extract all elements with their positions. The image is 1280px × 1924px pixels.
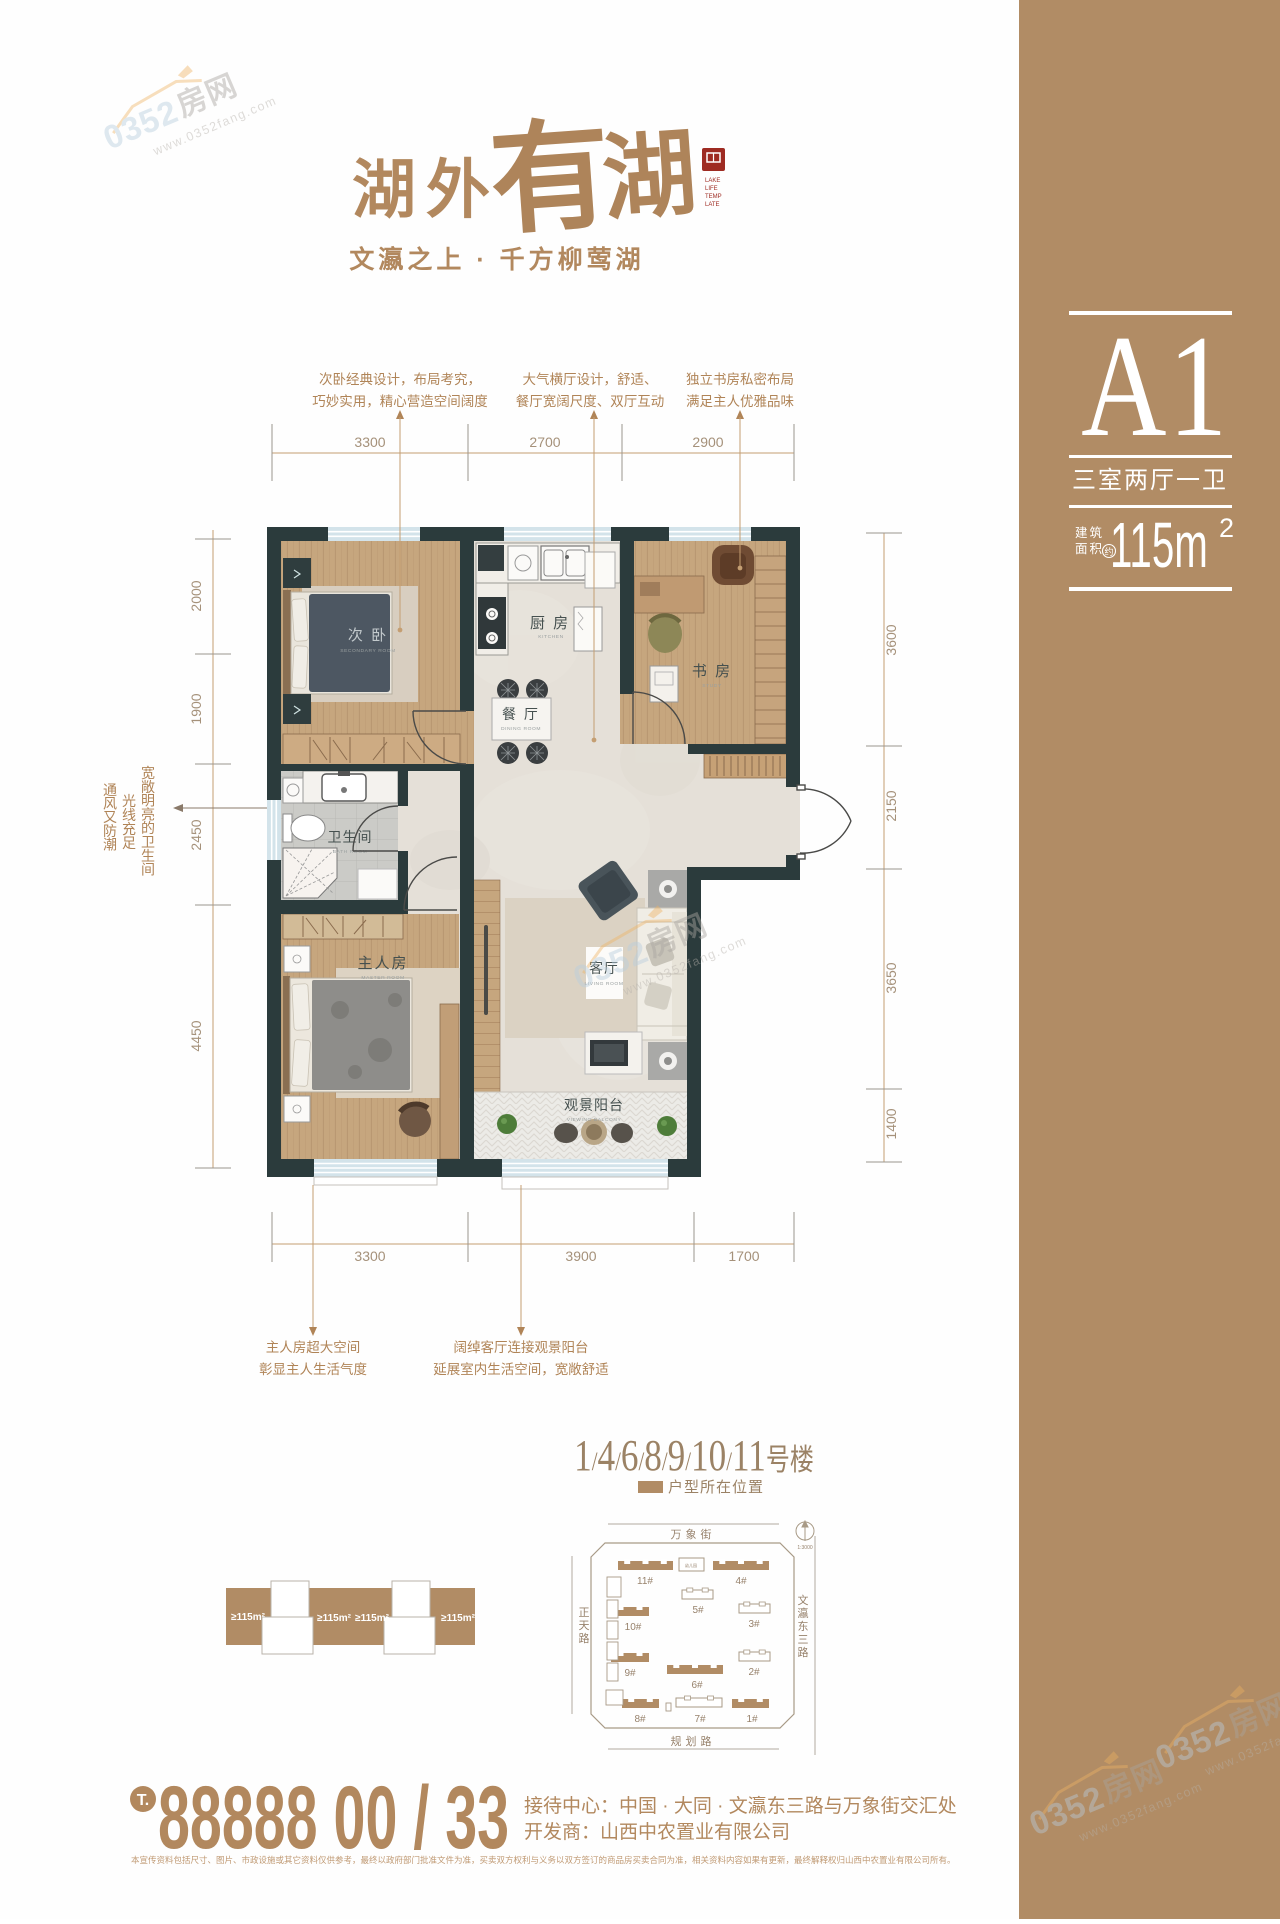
svg-text:规划路: 规划路 bbox=[671, 1734, 716, 1748]
svg-text:餐 厅: 餐 厅 bbox=[502, 706, 540, 722]
svg-text:厨 房: 厨 房 bbox=[530, 615, 570, 632]
svg-text:宽敞明亮的卫生间: 宽敞明亮的卫生间 bbox=[141, 765, 155, 878]
svg-text:2150: 2150 bbox=[883, 790, 899, 821]
svg-text:3650: 3650 bbox=[883, 962, 899, 993]
svg-text:BATH ROOM: BATH ROOM bbox=[333, 849, 367, 855]
svg-text:STUDY: STUDY bbox=[702, 683, 722, 689]
svg-text:4450: 4450 bbox=[188, 1020, 204, 1051]
svg-text:彰显主人生活气度: 彰显主人生活气度 bbox=[259, 1361, 367, 1377]
svg-text:1700: 1700 bbox=[728, 1248, 759, 1264]
svg-text:建筑: 建筑 bbox=[1075, 525, 1104, 540]
svg-text:延展室内生活空间，宽敞舒适: 延展室内生活空间，宽敞舒适 bbox=[433, 1361, 609, 1377]
svg-text:文瀛之上 · 千方柳莺湖: 文瀛之上 · 千方柳莺湖 bbox=[349, 245, 644, 274]
svg-text:3600: 3600 bbox=[883, 624, 899, 655]
svg-text:LIFE: LIFE bbox=[705, 186, 718, 192]
svg-text:LATE: LATE bbox=[705, 202, 720, 208]
svg-text:2#: 2# bbox=[748, 1667, 760, 1678]
svg-text:书 房: 书 房 bbox=[692, 663, 732, 680]
svg-text:1900: 1900 bbox=[188, 693, 204, 724]
svg-text:有: 有 bbox=[486, 108, 615, 249]
svg-text:接待中心：中国 · 大同 · 文瀛东三路与万象街交汇处: 接待中心：中国 · 大同 · 文瀛东三路与万象街交汇处 bbox=[524, 1794, 957, 1817]
svg-text:湖: 湖 bbox=[599, 122, 700, 232]
svg-text:LAKE: LAKE bbox=[705, 178, 720, 184]
svg-text:餐厅宽阔尺度、双厅互动: 餐厅宽阔尺度、双厅互动 bbox=[516, 393, 665, 409]
svg-text:7#: 7# bbox=[694, 1714, 706, 1725]
svg-text:≥115m²: ≥115m² bbox=[355, 1613, 390, 1624]
svg-text:三室两厅一卫: 三室两厅一卫 bbox=[1072, 467, 1228, 494]
svg-text:湖外: 湖外 bbox=[352, 155, 500, 226]
svg-text:4#: 4# bbox=[735, 1576, 747, 1587]
svg-text:2900: 2900 bbox=[692, 434, 723, 450]
svg-text:2: 2 bbox=[1219, 513, 1234, 543]
svg-text:阔绰客厅连接观景阳台: 阔绰客厅连接观景阳台 bbox=[454, 1339, 589, 1355]
svg-text:VIEWING BALCONY: VIEWING BALCONY bbox=[567, 1117, 622, 1123]
svg-text:DINING ROOM: DINING ROOM bbox=[501, 726, 541, 732]
svg-text:≥115m²: ≥115m² bbox=[441, 1613, 476, 1624]
svg-text:主人房: 主人房 bbox=[357, 955, 408, 972]
svg-text:幼儿园: 幼儿园 bbox=[685, 1562, 697, 1568]
svg-text:光线充足: 光线充足 bbox=[122, 793, 136, 851]
svg-text:≥115m²: ≥115m² bbox=[231, 1612, 266, 1623]
svg-text:万象街: 万象街 bbox=[671, 1527, 716, 1541]
svg-text:1400: 1400 bbox=[883, 1108, 899, 1139]
svg-text:A1: A1 bbox=[1081, 305, 1229, 467]
svg-text:2000: 2000 bbox=[188, 580, 204, 611]
svg-text:SECONDARY ROOM: SECONDARY ROOM bbox=[340, 648, 396, 654]
svg-text:3300: 3300 bbox=[354, 434, 385, 450]
svg-text:大气横厅设计，舒适、: 大气横厅设计，舒适、 bbox=[523, 372, 658, 387]
svg-text:MASTER ROOM: MASTER ROOM bbox=[361, 975, 404, 981]
svg-text:次卧经典设计，布局考究，: 次卧经典设计，布局考究， bbox=[319, 372, 481, 387]
svg-text:开发商：山西中农置业有限公司: 开发商：山西中农置业有限公司 bbox=[524, 1821, 790, 1843]
svg-text:满足主人优雅品味: 满足主人优雅品味 bbox=[686, 394, 794, 409]
svg-text:本宣传资料包括尺寸、图片、市政设施或其它资料仅供参考，最终以: 本宣传资料包括尺寸、图片、市政设施或其它资料仅供参考，最终以政府部门批准文件为准… bbox=[131, 1855, 956, 1865]
svg-text:通风又防潮: 通风又防潮 bbox=[103, 782, 117, 852]
svg-text:卫生间: 卫生间 bbox=[328, 829, 373, 845]
svg-text:3900: 3900 bbox=[565, 1248, 596, 1264]
svg-text:1:3000: 1:3000 bbox=[797, 1545, 813, 1551]
svg-text:11#: 11# bbox=[637, 1576, 653, 1587]
svg-text:9#: 9# bbox=[624, 1668, 636, 1679]
svg-text:6#: 6# bbox=[691, 1680, 703, 1691]
svg-text:T.: T. bbox=[137, 1792, 149, 1809]
svg-text:3#: 3# bbox=[748, 1619, 760, 1630]
svg-text:KITCHEN: KITCHEN bbox=[538, 634, 564, 640]
svg-text:88888 00 / 33: 88888 00 / 33 bbox=[158, 1767, 509, 1867]
svg-text:1#: 1# bbox=[746, 1714, 758, 1725]
svg-text:10#: 10# bbox=[625, 1622, 642, 1633]
svg-text:主人房超大空间: 主人房超大空间 bbox=[266, 1340, 361, 1355]
svg-text:115m: 115m bbox=[1110, 511, 1208, 582]
svg-text:8#: 8# bbox=[634, 1714, 646, 1725]
svg-text:3300: 3300 bbox=[354, 1248, 385, 1264]
svg-text:5#: 5# bbox=[692, 1605, 704, 1616]
svg-text:2700: 2700 bbox=[529, 434, 560, 450]
svg-text:观景阳台: 观景阳台 bbox=[564, 1097, 624, 1113]
svg-text:巧妙实用，精心营造空间阔度: 巧妙实用，精心营造空间阔度 bbox=[312, 394, 488, 409]
svg-text:独立书房私密布局: 独立书房私密布局 bbox=[686, 371, 794, 387]
svg-text:户型所在位置: 户型所在位置 bbox=[668, 1479, 764, 1496]
svg-text:正天路: 正天路 bbox=[579, 1607, 590, 1645]
svg-text:文瀛东三路: 文瀛东三路 bbox=[798, 1593, 809, 1659]
svg-text:面积: 面积 bbox=[1075, 542, 1104, 556]
svg-text:2450: 2450 bbox=[188, 819, 204, 850]
svg-text:次 卧: 次 卧 bbox=[348, 627, 388, 644]
svg-text:≥115m²: ≥115m² bbox=[317, 1613, 352, 1624]
svg-text:TEMP: TEMP bbox=[705, 194, 722, 200]
